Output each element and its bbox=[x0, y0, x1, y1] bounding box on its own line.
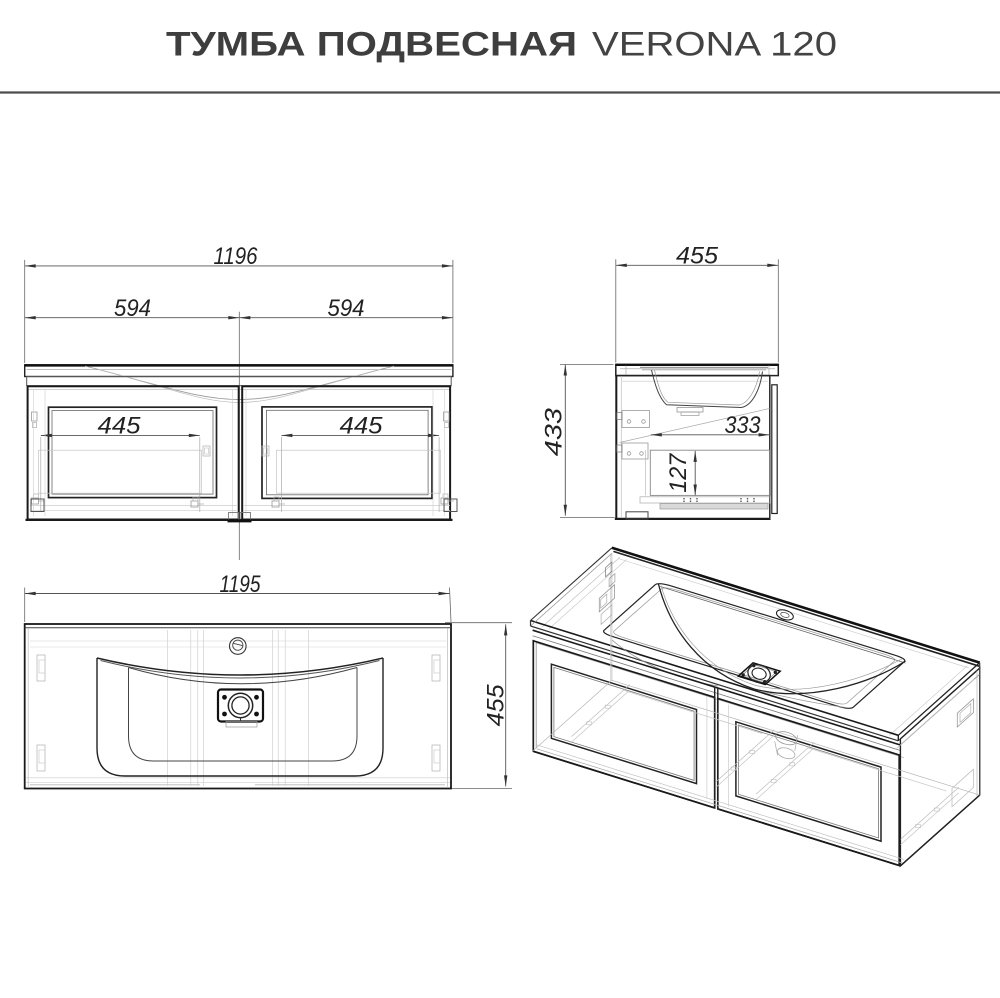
svg-text:455: 455 bbox=[483, 684, 510, 727]
svg-text:455: 455 bbox=[676, 243, 719, 270]
svg-text:1195: 1195 bbox=[220, 571, 262, 598]
svg-text:333: 333 bbox=[725, 412, 762, 439]
svg-text:433: 433 bbox=[541, 407, 568, 456]
svg-text:445: 445 bbox=[98, 413, 142, 440]
svg-text:127: 127 bbox=[665, 452, 692, 493]
svg-text:594: 594 bbox=[114, 295, 151, 322]
svg-text:445: 445 bbox=[340, 413, 384, 440]
svg-text:594: 594 bbox=[328, 295, 365, 322]
svg-text:1196: 1196 bbox=[214, 243, 259, 270]
svg-text:ТУМБА ПОДВЕСНАЯ: ТУМБА ПОДВЕСНАЯ bbox=[166, 26, 577, 64]
svg-text:VERONA 120: VERONA 120 bbox=[592, 26, 837, 64]
